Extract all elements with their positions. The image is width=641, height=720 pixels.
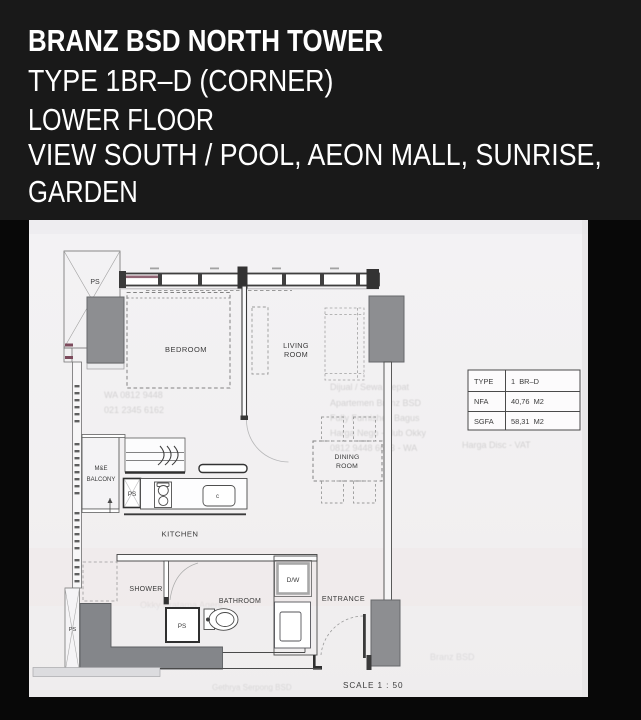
svg-text:ENTRANCE: ENTRANCE	[322, 594, 365, 603]
svg-text:LIVING: LIVING	[283, 341, 309, 350]
svg-text:D/W: D/W	[287, 577, 301, 584]
svg-text:021 2345 6162: 021 2345 6162	[104, 405, 164, 415]
svg-text:BALCONY: BALCONY	[87, 477, 116, 483]
svg-text:TYPE: TYPE	[474, 377, 493, 386]
svg-text:Branz BSD: Branz BSD	[430, 652, 475, 662]
svg-text:58,31 M2: 58,31 M2	[511, 417, 544, 426]
svg-text:40,76 M2: 40,76 M2	[511, 397, 544, 406]
svg-text:SGFA: SGFA	[474, 417, 494, 426]
svg-text:KITCHEN: KITCHEN	[162, 530, 199, 539]
svg-text:SCALE 1 : 50: SCALE 1 : 50	[343, 681, 403, 690]
svg-text:PS: PS	[128, 491, 137, 498]
svg-text:Harga Disc - VAT: Harga Disc - VAT	[462, 440, 531, 450]
svg-text:Dijual / Sewa Cepat: Dijual / Sewa Cepat	[330, 382, 410, 392]
svg-text:NFA: NFA	[474, 397, 488, 406]
svg-text:DINING: DINING	[335, 454, 360, 461]
svg-text:Gethrya Serpong BSD: Gethrya Serpong BSD	[212, 683, 292, 692]
svg-text:SHOWER: SHOWER	[129, 586, 162, 593]
svg-text:0812 9448 6633 - WA: 0812 9448 6633 - WA	[330, 443, 417, 453]
svg-text:PS: PS	[69, 627, 77, 633]
svg-text:M&E: M&E	[94, 466, 107, 472]
svg-text:WA 0812 9448: WA 0812 9448	[104, 390, 163, 400]
svg-text:c: c	[216, 494, 219, 500]
svg-text:Harga Nego - Hub Okky: Harga Nego - Hub Okky	[330, 428, 427, 438]
svg-text:1 BR–D: 1 BR–D	[511, 377, 539, 386]
svg-text:ROOM: ROOM	[284, 350, 308, 359]
svg-text:PS: PS	[178, 623, 187, 630]
svg-text:ROOM: ROOM	[336, 463, 358, 470]
svg-text:BEDROOM: BEDROOM	[165, 345, 207, 354]
svg-text:BATHROOM: BATHROOM	[219, 598, 261, 605]
svg-text:Apartemen Branz BSD: Apartemen Branz BSD	[330, 398, 422, 408]
svg-text:PS: PS	[90, 279, 100, 286]
